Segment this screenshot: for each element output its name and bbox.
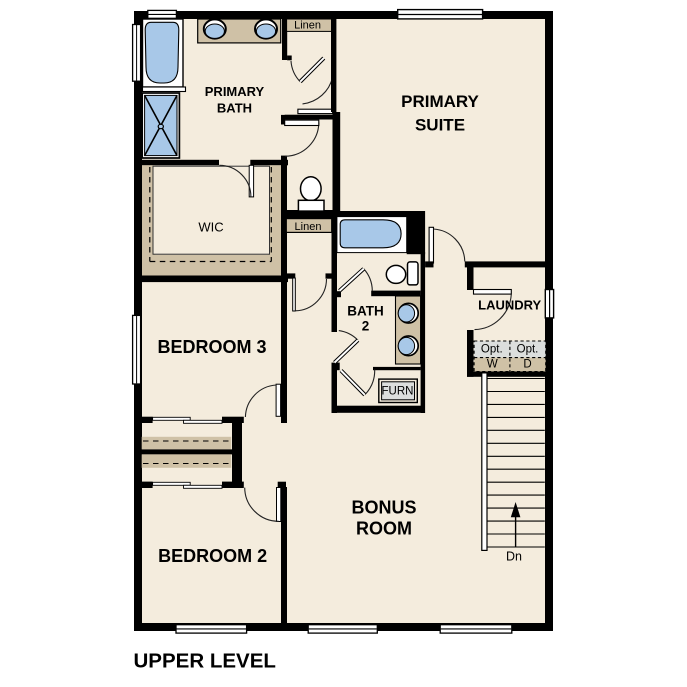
svg-text:SUITE: SUITE [415, 116, 465, 135]
svg-text:FURN: FURN [382, 386, 414, 398]
svg-text:D: D [523, 358, 531, 370]
svg-text:2: 2 [362, 319, 370, 334]
svg-text:Opt.: Opt. [517, 344, 539, 356]
svg-text:Opt.: Opt. [481, 344, 503, 356]
svg-text:Dn: Dn [506, 550, 522, 564]
svg-text:LAUNDRY: LAUNDRY [478, 298, 541, 313]
svg-text:UPPER LEVEL: UPPER LEVEL [134, 650, 276, 673]
svg-text:BEDROOM 3: BEDROOM 3 [157, 337, 266, 357]
svg-text:BATH: BATH [217, 100, 252, 115]
svg-text:WIC: WIC [198, 220, 223, 235]
svg-text:Linen: Linen [294, 20, 321, 32]
svg-text:BATH: BATH [347, 304, 384, 319]
svg-text:PRIMARY: PRIMARY [205, 84, 265, 99]
svg-text:PRIMARY: PRIMARY [401, 92, 479, 111]
svg-text:BONUS: BONUS [351, 498, 416, 518]
svg-text:BEDROOM 2: BEDROOM 2 [158, 546, 267, 566]
svg-text:ROOM: ROOM [356, 519, 412, 539]
svg-text:W: W [487, 358, 498, 370]
svg-text:Linen: Linen [295, 221, 322, 233]
